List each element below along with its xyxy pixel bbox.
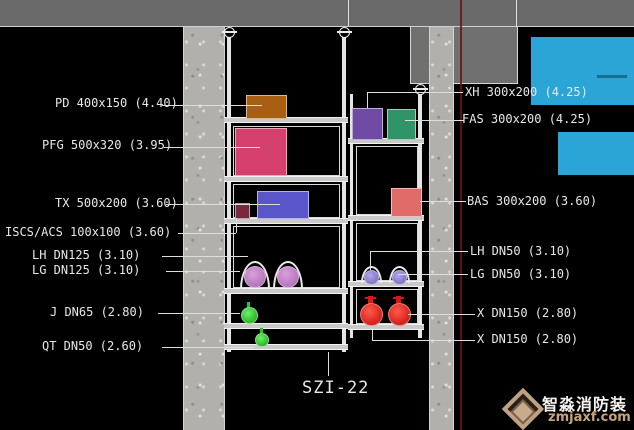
pipe-lg-dn125: [277, 266, 299, 288]
right-wall: [429, 27, 454, 430]
duct-xh: [352, 108, 383, 140]
leader-line: [398, 274, 468, 275]
watermark-url-text: zmjaxf.com: [548, 410, 631, 425]
label-x-dn150-1: X DN150 (2.80): [477, 307, 578, 320]
label-tx: TX 500x200 (3.60): [55, 197, 178, 210]
leader-line: [162, 256, 248, 257]
red-reference-line: [460, 0, 462, 430]
label-fas: FAS 300x200 (4.25): [462, 113, 592, 126]
duct-bas: [391, 188, 422, 217]
tray-channel: [348, 324, 424, 330]
cyan-highlight-block: [558, 132, 634, 175]
leader-line: [370, 251, 371, 270]
leader-line: [372, 340, 475, 341]
valve-crossbar: [393, 297, 404, 299]
slab-grid-line: [516, 0, 517, 27]
leader-line: [420, 201, 466, 202]
pipe-lg-dn50: [392, 270, 407, 285]
label-x-dn150-2: X DN150 (2.80): [477, 333, 578, 346]
leader-line: [164, 147, 260, 148]
duct-tx: [257, 191, 309, 219]
hanger-rod-center: [342, 36, 346, 352]
leader-line: [370, 251, 468, 252]
leader-line: [162, 347, 255, 348]
label-iscs-acs: ISCS/ACS 100x100 (3.60): [5, 226, 171, 239]
duct-pfg: [235, 128, 287, 176]
section-tag: SZI-22: [302, 378, 369, 398]
pipe-j-dn65: [241, 307, 258, 324]
label-xh: XH 300x200 (4.25): [465, 86, 588, 99]
leader-line: [236, 218, 237, 233]
tray-channel: [224, 176, 348, 182]
concrete-beam: [410, 27, 518, 84]
tray-channel: [348, 281, 424, 287]
hanger-rod-left: [227, 36, 231, 352]
label-lh-dn50: LH DN50 (3.10): [470, 245, 571, 258]
leader-line: [367, 92, 463, 93]
pipe-x-dn150-left: [360, 303, 383, 326]
label-bas: BAS 300x200 (3.60): [467, 195, 597, 208]
leader-line: [367, 92, 368, 108]
slab-grid-line: [348, 0, 349, 26]
label-lg-dn50: LG DN50 (3.10): [470, 268, 571, 281]
label-lg-dn125: LG DN125 (3.10): [32, 264, 140, 277]
label-qt-dn50: QT DN50 (2.60): [42, 340, 143, 353]
pipe-lh-dn50: [364, 270, 379, 285]
pipe-qt-dn50: [255, 333, 269, 347]
ceiling-slab: [0, 0, 634, 27]
anchor-bolt-icon: [339, 27, 350, 38]
leader-line: [408, 314, 475, 315]
watermark: 智淼消防装 zmjaxf.com: [500, 386, 634, 430]
leader-line: [328, 352, 329, 376]
leader-line: [166, 204, 280, 205]
anchor-bolt-icon: [224, 27, 235, 38]
left-wall: [183, 27, 225, 430]
duct-pd: [246, 95, 287, 119]
leader-line: [166, 271, 240, 272]
label-lh-dn125: LH DN125 (3.10): [32, 249, 140, 262]
label-j-dn65: J DN65 (2.80): [50, 306, 144, 319]
anchor-bolt-icon: [415, 84, 426, 95]
duct-fas: [387, 109, 416, 140]
label-pfg: PFG 500x320 (3.95): [42, 139, 172, 152]
watermark-logo-icon: [502, 388, 544, 430]
valve-crossbar: [365, 297, 376, 299]
duct-iscs-acs: [235, 203, 250, 219]
leader-line: [178, 233, 236, 234]
leader-line: [405, 120, 464, 121]
label-pd: PD 400x150 (4.40): [55, 97, 178, 110]
cyan-block-dash: [597, 75, 627, 78]
leader-line: [372, 328, 373, 340]
watermark-logo-inner: [510, 399, 535, 424]
tray-channel: [224, 323, 348, 329]
pipe-lh-dn125: [244, 266, 266, 288]
cad-section-drawing: PD 400x150 (4.40) PFG 500x320 (3.95) TX …: [0, 0, 634, 430]
leader-line: [158, 313, 240, 314]
